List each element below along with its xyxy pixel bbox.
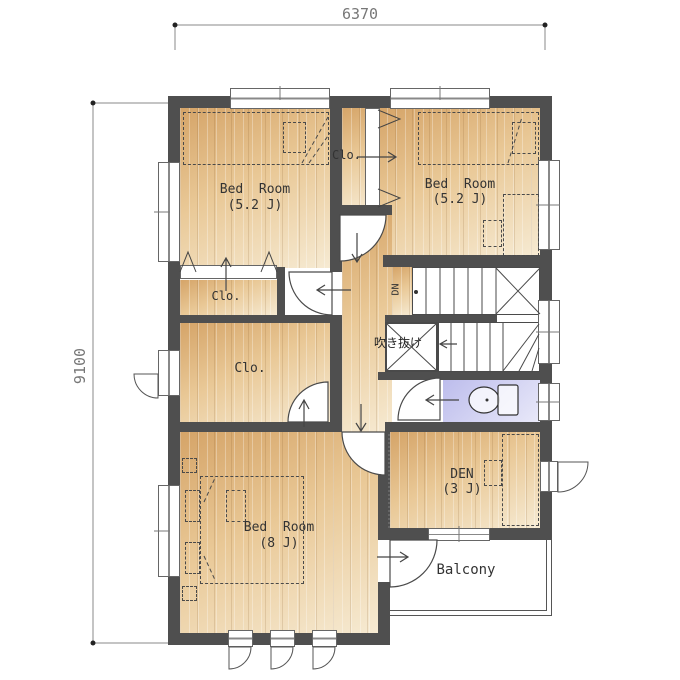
toilet-entry: [392, 375, 443, 422]
wall-bedroom-tr-bottom: [383, 255, 552, 267]
headboard-3: [185, 542, 200, 574]
closet-tr-label: Clo.: [332, 149, 366, 162]
bedroom-tl-size: (5.2 J): [188, 199, 322, 213]
bed-outline-tl: [183, 112, 329, 165]
door-arc-bedroom-tl: [289, 272, 332, 315]
window-bottom-1: [228, 630, 253, 647]
closet-small-door-track: [180, 265, 277, 279]
floor-plan: Bed Room (5.2 J) Bed Room (5.2 J) Clo. C…: [0, 0, 680, 680]
window-right-toilet: [538, 383, 560, 421]
den-name: DEN: [430, 468, 494, 482]
wall-hall-lower: [330, 315, 342, 432]
bedroom-b-name: Bed Room: [212, 521, 346, 535]
headboard-2: [185, 490, 200, 522]
chair-outline-tr: [483, 220, 502, 247]
casement-arc-den: [558, 462, 588, 492]
wall-mid-horizontal-left: [168, 422, 342, 432]
window-right-den: [540, 461, 558, 492]
casement-arc-left-closet: [134, 374, 158, 398]
closet-top-right-door-track: [365, 108, 380, 213]
window-top-right: [390, 88, 490, 109]
wall-below-closet-tr: [330, 205, 392, 215]
wall-stairs-mid: [385, 315, 497, 322]
window-left-bedroom-tl: [158, 162, 180, 262]
stairs-lower-flight: [438, 322, 540, 372]
void-label: 吹き抜け: [374, 337, 440, 350]
pillow-outline-tl: [283, 122, 306, 153]
bedroom-tl-name: Bed Room: [188, 183, 322, 197]
headboard-1: [182, 458, 197, 473]
toilet-floor: [443, 378, 540, 422]
pillow-outline-b: [226, 490, 246, 522]
window-left-closet: [158, 350, 180, 396]
headboard-4: [182, 586, 197, 601]
wall-den-bottom-right: [490, 528, 552, 540]
window-left-bedroom-b: [158, 485, 180, 577]
window-right-bedroom-tr: [538, 160, 560, 250]
wall-mid-horizontal-right: [385, 422, 552, 432]
wall-exterior-top: [168, 96, 552, 108]
desk-outline-den: [502, 434, 539, 526]
dimension-top-value: 6370: [310, 5, 410, 23]
window-den-balcony: [428, 528, 490, 541]
window-bottom-3: [312, 630, 337, 647]
window-top-left: [230, 88, 330, 109]
balcony-label: Balcony: [408, 563, 524, 578]
dimension-left-value: 9100: [71, 344, 89, 388]
stairs-upper-flight: [412, 267, 540, 315]
bedroom-b-size: (8 J): [212, 537, 346, 551]
wall-hall-upper: [330, 96, 342, 272]
doorway-gap-bedroom-tl: [330, 272, 342, 315]
bedroom-tr-size: (5.2 J): [394, 193, 526, 207]
bedroom-tr-name: Bed Room: [394, 178, 526, 192]
wall-den-bottom-left: [385, 528, 428, 540]
wall-below-closet-small: [168, 315, 330, 323]
closet-walkin-label: Clo.: [222, 362, 278, 376]
closet-small-label: Clo.: [204, 290, 248, 303]
wall-bedroom-b-right-lower: [378, 582, 390, 633]
den-open-edge-dotted: [388, 434, 392, 528]
pillow-outline-tr: [512, 122, 536, 154]
wall-above-toilet: [378, 372, 552, 380]
window-right-stairwell: [538, 300, 560, 364]
stairs-dn-label: DN: [391, 278, 402, 302]
den-size: (3 J): [430, 483, 494, 497]
window-bottom-2: [270, 630, 295, 647]
